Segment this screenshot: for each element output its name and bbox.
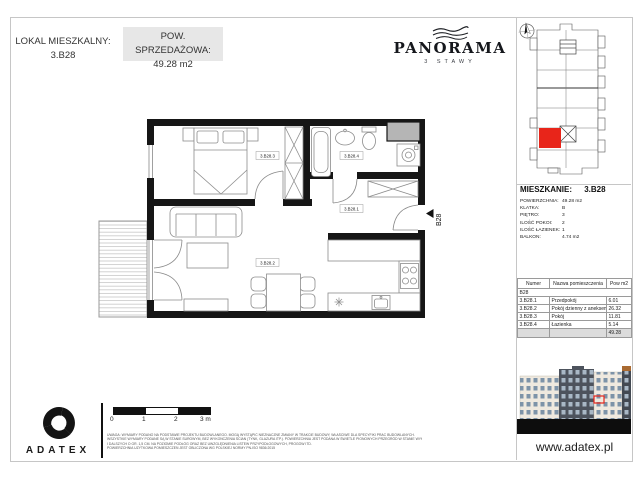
sales-area-label: POW. SPRZEDAŻOWA: [123, 30, 223, 58]
rooms-table: Numer Nazwa pomieszczenia Pow m2 B28 3.B… [517, 278, 632, 338]
toilet-icon [362, 127, 376, 150]
dining-set-icon [251, 274, 315, 311]
apartment-heading-label: MIESZKANIE: [520, 185, 572, 194]
sales-area-value: 49.28 m2 [123, 58, 223, 72]
detail-row: PIĘTRO: 3 [520, 212, 628, 219]
unit-highlight [539, 128, 561, 148]
building-elevation [516, 364, 632, 436]
adatex-knot-icon [18, 398, 98, 448]
table-row: 3.B28.3 Pokój 11.81 [518, 313, 632, 321]
adatex-logo: ADATEX [10, 445, 106, 456]
floor-plan: 3.B28.3 3.B28.4 3.B28.1 3.B28.2 B28 [90, 90, 460, 360]
sink-icon [336, 129, 355, 145]
scale-tick: 2 [174, 416, 178, 423]
building-minimap [516, 17, 632, 184]
detail-row: POWIERZCHNIA: 49.28 m2 [520, 198, 628, 205]
disclaimer: UWAGA: WYMIARY PODANO NA PODSTAWIE PROJE… [107, 433, 422, 450]
tv-bench-icon [184, 299, 228, 311]
table-row: 3.B28.2 Pokój dzienny z aneksem 26.32 [518, 305, 632, 313]
footer-divider [101, 403, 103, 458]
detail-row: ILOŚĆ POKOI: 2 [520, 220, 628, 227]
table-group-row: B28 [518, 289, 632, 297]
apartment-details: POWIERZCHNIA: 49.28 m2 KLATKA: B PIĘTRO:… [520, 198, 628, 241]
entrance-arrow-icon [426, 209, 434, 218]
entrance-marker: B28 [426, 209, 443, 226]
table-row: 3.B28.4 Łazienka 5.14 [518, 321, 632, 329]
table-total-row: 49.28 [518, 329, 632, 338]
scale-bar [113, 407, 211, 415]
brand-subtitle: 3 STAWY [383, 59, 517, 65]
unit-header-value: 3.B28 [14, 49, 112, 63]
detail-row: KLATKA: B [520, 205, 628, 212]
kitchen-sink-icon [372, 296, 390, 310]
floorplan-sheet: LOKAL MIESZKALNY: 3.B28 POW. SPRZEDAŻOWA… [0, 0, 640, 480]
sales-area-box: POW. SPRZEDAŻOWA: 49.28 m2 [123, 27, 223, 61]
hall-wardrobe-icon [368, 181, 418, 197]
room-label-hall: 3.B28.1 [344, 206, 359, 211]
apartment-heading-value: 3.B28 [584, 185, 605, 194]
unit-header: LOKAL MIESZKALNY: 3.B28 [14, 35, 112, 63]
room-label-bathroom: 3.B28.4 [344, 153, 359, 158]
scale-tick: 3 m [200, 416, 211, 423]
table-row: 3.B28.1 Przedpokój 6.01 [518, 297, 632, 305]
room-label-living: 3.B28.2 [260, 260, 275, 265]
unit-header-label: LOKAL MIESZKALNY: [14, 35, 112, 49]
stove-icon [401, 264, 419, 289]
bed-icon [183, 128, 258, 194]
bathtub-icon [312, 128, 331, 177]
balcony [99, 221, 147, 317]
scale-tick: 0 [110, 416, 114, 423]
coffee-table-icon [187, 243, 228, 268]
ground-band [517, 419, 631, 434]
shaft [387, 122, 420, 141]
brand-name: PANORAMA [383, 39, 517, 57]
detail-row: BALKON: 4.74 m2 [520, 234, 628, 241]
entrance-label: B28 [436, 213, 443, 226]
wardrobe-icon [285, 127, 303, 199]
detail-row: ILOŚĆ ŁAZIENEK: 1 [520, 227, 628, 234]
sofa-icon [170, 207, 242, 237]
scale-tick: 1 [142, 416, 146, 423]
total-area: 49.28 [607, 329, 632, 338]
washing-machine-icon [397, 144, 420, 166]
room-label-bedroom: 3.B28.3 [260, 153, 275, 158]
table-header-row: Numer Nazwa pomieszczenia Pow m2 [518, 279, 632, 289]
apartment-heading: MIESZKANIE: 3.B28 [520, 185, 630, 194]
website-link[interactable]: www.adatex.pl [517, 440, 632, 454]
